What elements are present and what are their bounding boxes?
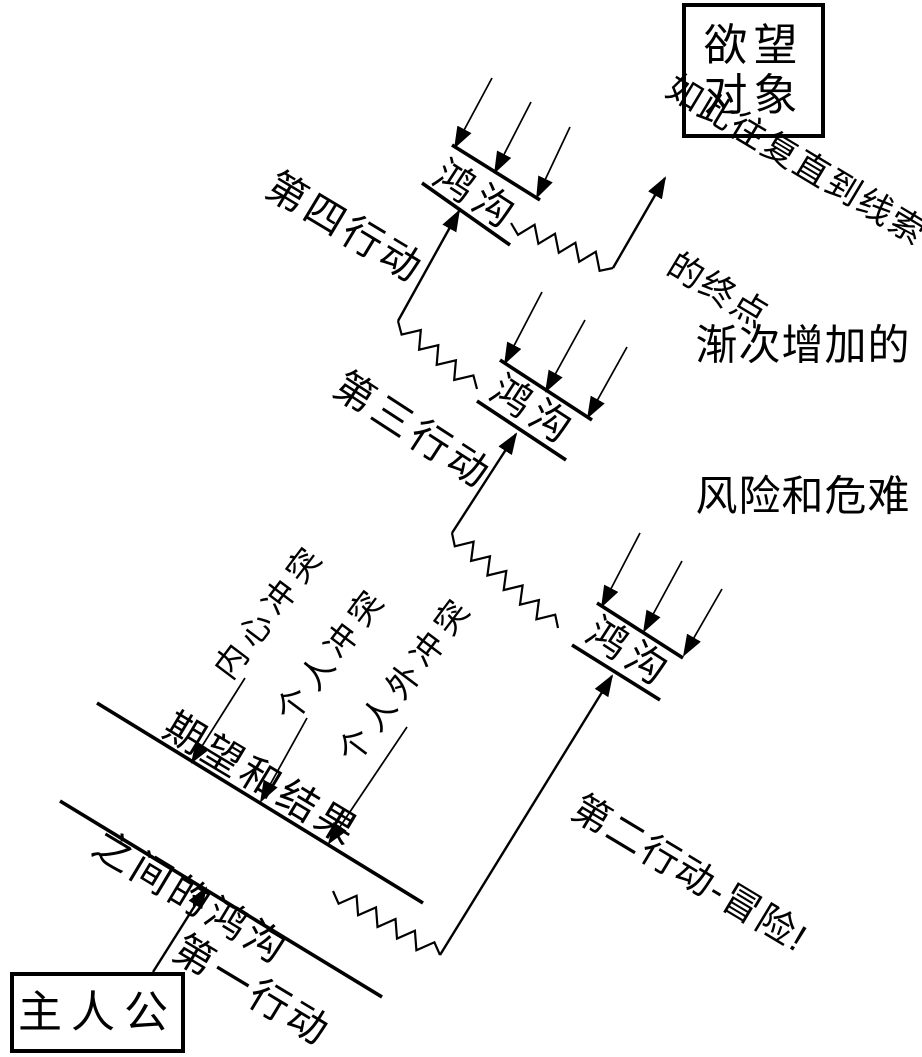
- gap-1-pressure-arrow: [455, 78, 492, 147]
- gap-2-crack-zigzag: [398, 321, 477, 389]
- gap-3-pressure-arrow: [602, 533, 640, 606]
- gap-3-pressure-arrow: [644, 561, 682, 631]
- gap-1-pressure-arrow: [495, 102, 531, 172]
- rising-risk-label: 渐次增加的 风险和危难: [695, 219, 910, 622]
- expectation-gap-crack-zigzag: [333, 891, 440, 955]
- gap-1-pressure-arrow: [537, 127, 570, 197]
- story-gap-diagram: 欲望 对象 主人公 鸿沟 鸿沟 鸿沟 期望和结果 之间的鸿沟 第一行动 第二行动…: [0, 0, 922, 1057]
